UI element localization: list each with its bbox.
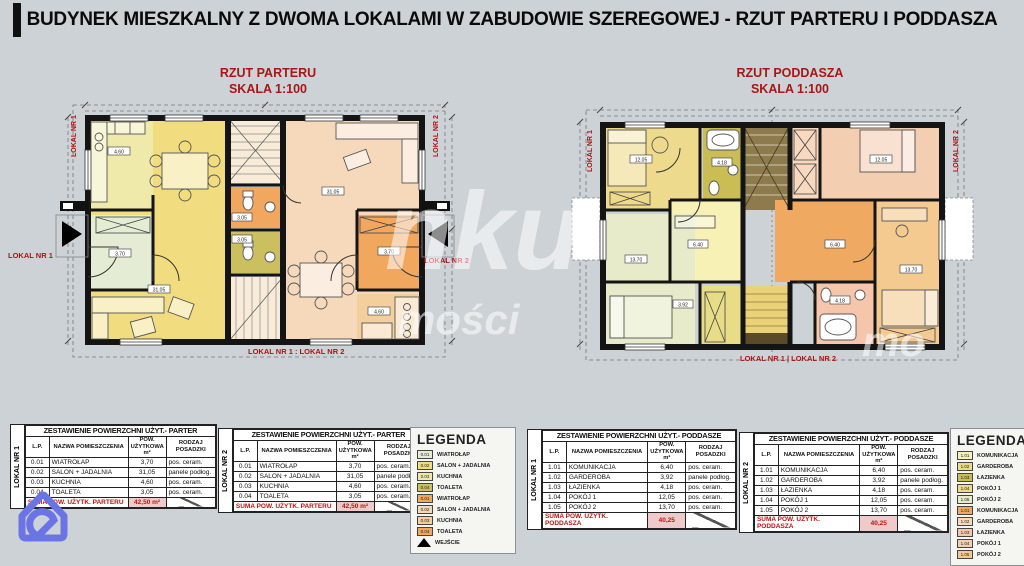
svg-text:LOKAL NR 1: LOKAL NR 1 <box>587 130 594 172</box>
table-title: ZESTAWIENIE POWIERZCHNI UŻYT.- PARTER <box>25 426 215 437</box>
legend-swatch: 0.03 <box>417 472 433 481</box>
legend-item-label: WIATROŁAP <box>437 452 470 458</box>
table-side-label: LOKAL NR 2 <box>219 429 233 512</box>
legend-swatch: 1.01 <box>957 451 973 460</box>
svg-text:LOKAL NR 2: LOKAL NR 2 <box>953 130 960 172</box>
poddasze-caption-line1: RZUT PODDASZA <box>715 66 865 82</box>
legend-item-label: TOALETA <box>437 485 462 491</box>
table-title: ZESTAWIENIE POWIERZCHNI UŻYT.- PARTER <box>233 430 423 441</box>
legend-swatch: 1.04 <box>957 484 973 493</box>
table-row: 0.01WIATROŁAP3,70pos. ceram. <box>233 461 423 471</box>
legend-swatch: 1.02 <box>957 517 973 526</box>
table-row: 1.04POKÓJ 112,05pos. ceram. <box>542 492 735 502</box>
legend-item-label: KOMUNIKACJA <box>977 508 1018 514</box>
svg-text:3.70: 3.70 <box>115 252 125 258</box>
legend-parter: LEGENDA 0.01WIATROŁAP0.02SALON + JADALNI… <box>410 427 516 554</box>
brand-logo-house-icon <box>12 486 74 542</box>
table-row: 1.01KOMUNIKACJA6,40pos. ceram. <box>542 462 735 472</box>
poddasze-caption: RZUT PODDASZA SKALA 1:100 <box>715 66 865 97</box>
svg-text:4.60: 4.60 <box>374 310 384 316</box>
poddasze-floor-plan: 12.05 4.18 6.40 13.70 3.92 12.05 6.40 4.… <box>530 100 1024 375</box>
table-parter-lokal2: LOKAL NR 2 ZESTAWIENIE POWIERZCHNI UŻYT.… <box>218 428 425 513</box>
legend-item: 1.02GARDEROBA <box>957 517 1024 526</box>
legend-item: 1.01KOMUNIKACJA <box>957 451 1024 460</box>
table-row: 1.05POKÓJ 213,70pos. ceram. <box>542 502 735 512</box>
svg-text:4.18: 4.18 <box>835 299 845 305</box>
legend-item: 0.01WIATROŁAP <box>417 494 509 503</box>
svg-text:12.05: 12.05 <box>875 158 888 164</box>
table-row: 1.03ŁAZIENKA4,18pos. ceram. <box>754 485 947 495</box>
legend-title: LEGENDA <box>417 432 509 447</box>
poddasze-caption-line2: SKALA 1:100 <box>715 82 865 98</box>
sum-label: SUMA POW. UŻYTK. PARTERU <box>233 501 336 511</box>
legend-items: 0.01WIATROŁAP0.02SALON + JADALNIA0.03KUC… <box>417 450 509 536</box>
table-row: 0.01WIATROŁAP3,70pos. ceram. <box>25 457 215 467</box>
legend-item-label: KOMUNIKACJA <box>977 453 1018 459</box>
table-side-label: LOKAL NR 1 <box>528 430 542 529</box>
legend-title: LEGENDA <box>957 433 1024 448</box>
table-title: ZESTAWIENIE POWIERZCHNI UŻYT.- PODDASZE <box>542 431 735 442</box>
legend-swatch: 0.04 <box>417 527 433 536</box>
table-row: 1.01KOMUNIKACJA6,40pos. ceram. <box>754 465 947 475</box>
legend-item-label: GARDEROBA <box>977 464 1013 470</box>
svg-text:13.70: 13.70 <box>630 258 643 264</box>
table-row: 1.02GARDEROBA3,92panele podłog. <box>542 472 735 482</box>
legend-item: 1.05POKÓJ 2 <box>957 495 1024 504</box>
parter-caption: RZUT PARTERU SKALA 1:100 <box>193 66 343 97</box>
svg-text:LOKAL NR 1: LOKAL NR 1 <box>71 115 78 157</box>
legend-item-label: SALON + JADALNIA <box>437 463 490 469</box>
legend-item-label: SALON + JADALNIA <box>437 507 490 513</box>
table-poddasze-lokal2: LOKAL NR 2 ZESTAWIENIE POWIERZCHNI UŻYT.… <box>739 432 949 533</box>
legend-swatch: 1.03 <box>957 528 973 537</box>
legend-item: 1.01KOMUNIKACJA <box>957 506 1024 515</box>
table-row: 1.02GARDEROBA3,92panele podłog. <box>754 475 947 485</box>
legend-entrance-row: WEJŚCIE <box>417 538 509 547</box>
table-row: 0.03KUCHNIA4,60pos. ceram. <box>233 481 423 491</box>
legend-item: 1.02GARDEROBA <box>957 462 1024 471</box>
svg-text:4.60: 4.60 <box>114 150 124 156</box>
svg-text:LOKAL NR 2: LOKAL NR 2 <box>433 115 440 157</box>
table-row: 0.02SALON + JADALNIA31,05panele podłog. <box>25 467 215 477</box>
svg-text:3.70: 3.70 <box>384 250 394 256</box>
svg-text:12.05: 12.05 <box>635 158 648 164</box>
entrance-arrow-lokal1 <box>62 221 82 247</box>
legend-item: 0.01WIATROŁAP <box>417 450 509 459</box>
legend-item: 0.04TOALETA <box>417 483 509 492</box>
svg-text:LOKAL NR 1 : LOKAL NR 2: LOKAL NR 1 : LOKAL NR 2 <box>248 347 344 356</box>
sum-label: SUMA POW. UŻYTK. PODDASZA <box>754 515 859 531</box>
entrance-arrow-lokal2 <box>428 221 448 247</box>
legend-item-label: ŁAZIENKA <box>977 530 1005 536</box>
sum-value: 42,50 m² <box>128 497 166 507</box>
legend-poddasze: LEGENDA 1.01KOMUNIKACJA1.02GARDEROBA1.03… <box>950 428 1024 566</box>
svg-text:4.18: 4.18 <box>717 161 727 167</box>
page-title: BUDYNEK MIESZKALNY Z DWOMA LOKALAMI W ZA… <box>0 9 1024 31</box>
table-title: ZESTAWIENIE POWIERZCHNI UŻYT.- PODDASZE <box>754 434 947 445</box>
legend-item: 0.03KUCHNIA <box>417 516 509 525</box>
parter-caption-line1: RZUT PARTERU <box>193 66 343 82</box>
sum-value: 40,25 <box>860 515 898 531</box>
svg-text:3.05: 3.05 <box>237 238 247 244</box>
legend-swatch: 0.01 <box>417 494 433 503</box>
legend-item-label: POKÓJ 1 <box>977 486 1001 492</box>
sum-value: 42,50 m² <box>336 501 374 511</box>
legend-swatch: 0.02 <box>417 505 433 514</box>
legend-item: 0.04TOALETA <box>417 527 509 536</box>
legend-swatch: 1.03 <box>957 473 973 482</box>
legend-item-label: POKÓJ 2 <box>977 552 1001 558</box>
entrance-triangle-icon <box>417 538 431 547</box>
parter-caption-line2: SKALA 1:100 <box>193 82 343 98</box>
table-row: 0.02SALON + JADALNIA31,05panele podłog. <box>233 471 423 481</box>
legend-swatch: 1.02 <box>957 462 973 471</box>
table-row: 0.04TOALETA3,05pos. ceram. <box>233 491 423 501</box>
legend-swatch: 0.04 <box>417 483 433 492</box>
parter-floor-plan: 4.60 3.70 31.05 3.05 3.05 31.05 3.70 4.6… <box>0 95 530 370</box>
legend-swatch: 0.01 <box>417 450 433 459</box>
legend-item-label: WIATROŁAP <box>437 496 470 502</box>
legend-item-label: KUCHNIA <box>437 518 462 524</box>
legend-item: 0.03KUCHNIA <box>417 472 509 481</box>
legend-item-label: TOALETA <box>437 529 462 535</box>
legend-swatch: 0.03 <box>417 516 433 525</box>
legend-item: 0.02SALON + JADALNIA <box>417 505 509 514</box>
legend-item-label: GARDEROBA <box>977 519 1013 525</box>
legend-swatch: 1.05 <box>957 550 973 559</box>
svg-text:6.40: 6.40 <box>830 243 840 249</box>
svg-text:31.05: 31.05 <box>153 288 166 294</box>
legend-items: 1.01KOMUNIKACJA1.02GARDEROBA1.03ŁAZIENKA… <box>957 451 1024 559</box>
table-side-label: LOKAL NR 2 <box>740 433 754 532</box>
sum-diagonal-cell <box>686 512 736 528</box>
room-garderoba-lokal2 <box>790 125 820 200</box>
legend-swatch: 1.05 <box>957 495 973 504</box>
legend-item: 0.02SALON + JADALNIA <box>417 461 509 470</box>
table-poddasze-lokal1: LOKAL NR 1 ZESTAWIENIE POWIERZCHNI UŻYT.… <box>527 429 737 530</box>
sum-label: SUMA POW. UŻYTK. PODDASZA <box>542 512 647 528</box>
table-row: 1.04POKÓJ 112,05pos. ceram. <box>754 495 947 505</box>
svg-text:13.70: 13.70 <box>905 268 918 274</box>
legend-item-label: POKÓJ 2 <box>977 497 1001 503</box>
legend-item: 1.03ŁAZIENKA <box>957 473 1024 482</box>
svg-text:LOKAL NR 1 | LOKAL NR 2: LOKAL NR 1 | LOKAL NR 2 <box>740 354 836 363</box>
legend-item-label: KUCHNIA <box>437 474 462 480</box>
entrance-label: WEJŚCIE <box>435 540 460 546</box>
legend-item: 1.04POKÓJ 1 <box>957 484 1024 493</box>
svg-text:3.92: 3.92 <box>678 303 688 309</box>
svg-text:6.40: 6.40 <box>693 243 703 249</box>
svg-text:31.05: 31.05 <box>327 190 340 196</box>
table-row: 1.05POKÓJ 213,70pos. ceram. <box>754 505 947 515</box>
sum-value: 40,25 <box>648 512 686 528</box>
svg-text:LOKAL NR 1: LOKAL NR 1 <box>8 251 53 260</box>
legend-item: 1.05POKÓJ 2 <box>957 550 1024 559</box>
legend-swatch: 1.01 <box>957 506 973 515</box>
legend-swatch: 0.02 <box>417 461 433 470</box>
svg-text:3.05: 3.05 <box>237 216 247 222</box>
sum-diagonal-cell <box>166 497 215 507</box>
legend-item-label: ŁAZIENKA <box>977 475 1005 481</box>
sum-diagonal-cell <box>898 515 948 531</box>
table-row: 1.03ŁAZIENKA4,18pos. ceram. <box>542 482 735 492</box>
legend-item: 1.03ŁAZIENKA <box>957 528 1024 537</box>
svg-text:LOKAL NR 2: LOKAL NR 2 <box>424 256 469 265</box>
